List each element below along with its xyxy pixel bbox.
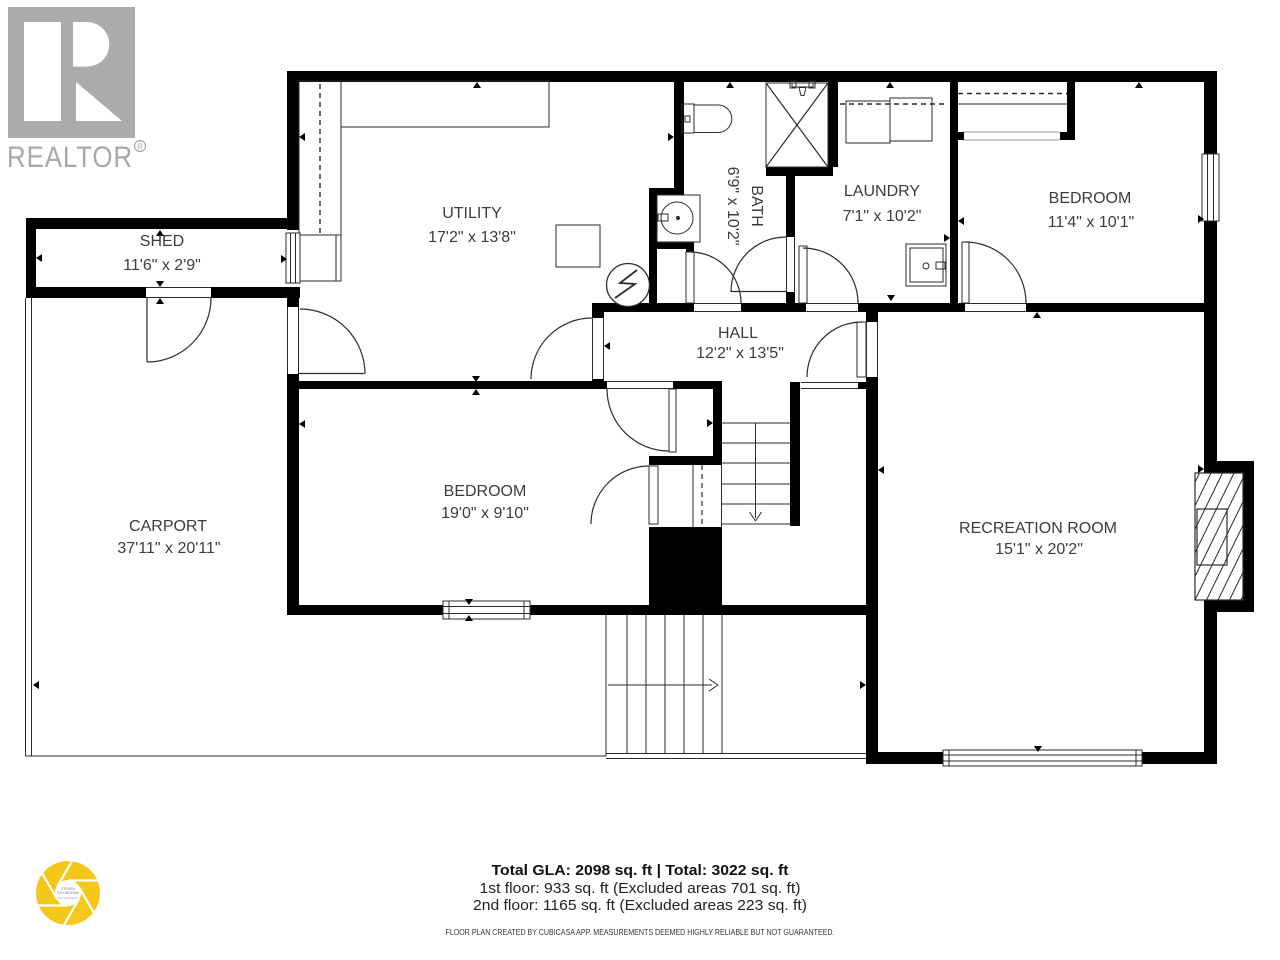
svg-text:REALTOR: REALTOR bbox=[7, 141, 133, 174]
svg-text:GILLINGHAM: GILLINGHAM bbox=[57, 891, 79, 895]
svg-text:BATH6'9" x 10'2": BATH6'9" x 10'2" bbox=[724, 167, 765, 246]
svg-text:2nd floor: 1165 sq. ft (Exclud: 2nd floor: 1165 sq. ft (Excluded areas 2… bbox=[473, 897, 807, 914]
svg-text:17'2" x 13'8": 17'2" x 13'8" bbox=[428, 229, 516, 246]
svg-text:CARPORT: CARPORT bbox=[129, 518, 207, 535]
svg-text:FLOOR PLAN CREATED BY CUBICASA: FLOOR PLAN CREATED BY CUBICASA APP. MEAS… bbox=[446, 928, 835, 937]
svg-text:PHOTOGRAPHY: PHOTOGRAPHY bbox=[57, 896, 79, 900]
svg-text:UTILITY: UTILITY bbox=[442, 205, 502, 222]
svg-text:7'1" x 10'2": 7'1" x 10'2" bbox=[843, 208, 922, 225]
svg-text:SHED: SHED bbox=[140, 233, 184, 250]
svg-text:Total GLA: 2098 sq. ft | Total: Total GLA: 2098 sq. ft | Total: 3022 sq.… bbox=[492, 862, 789, 879]
svg-text:BEDROOM: BEDROOM bbox=[444, 483, 527, 500]
svg-text:R: R bbox=[137, 143, 143, 152]
svg-text:11'6" x 2'9": 11'6" x 2'9" bbox=[123, 257, 201, 274]
svg-text:1st floor: 933 sq. ft (Exclude: 1st floor: 933 sq. ft (Excluded areas 70… bbox=[480, 880, 801, 897]
svg-text:BEDROOM: BEDROOM bbox=[1049, 190, 1132, 207]
svg-text:19'0" x 9'10": 19'0" x 9'10" bbox=[441, 505, 529, 522]
svg-text:RECREATION ROOM: RECREATION ROOM bbox=[959, 520, 1117, 537]
svg-text:37'11" x 20'11": 37'11" x 20'11" bbox=[117, 540, 220, 557]
svg-text:12'2" x 13'5": 12'2" x 13'5" bbox=[696, 345, 784, 362]
svg-text:HALL: HALL bbox=[718, 325, 758, 342]
svg-text:15'1" x 20'2": 15'1" x 20'2" bbox=[995, 541, 1083, 558]
svg-text:LAUNDRY: LAUNDRY bbox=[844, 183, 921, 200]
svg-text:11'4" x 10'1": 11'4" x 10'1" bbox=[1048, 214, 1135, 231]
